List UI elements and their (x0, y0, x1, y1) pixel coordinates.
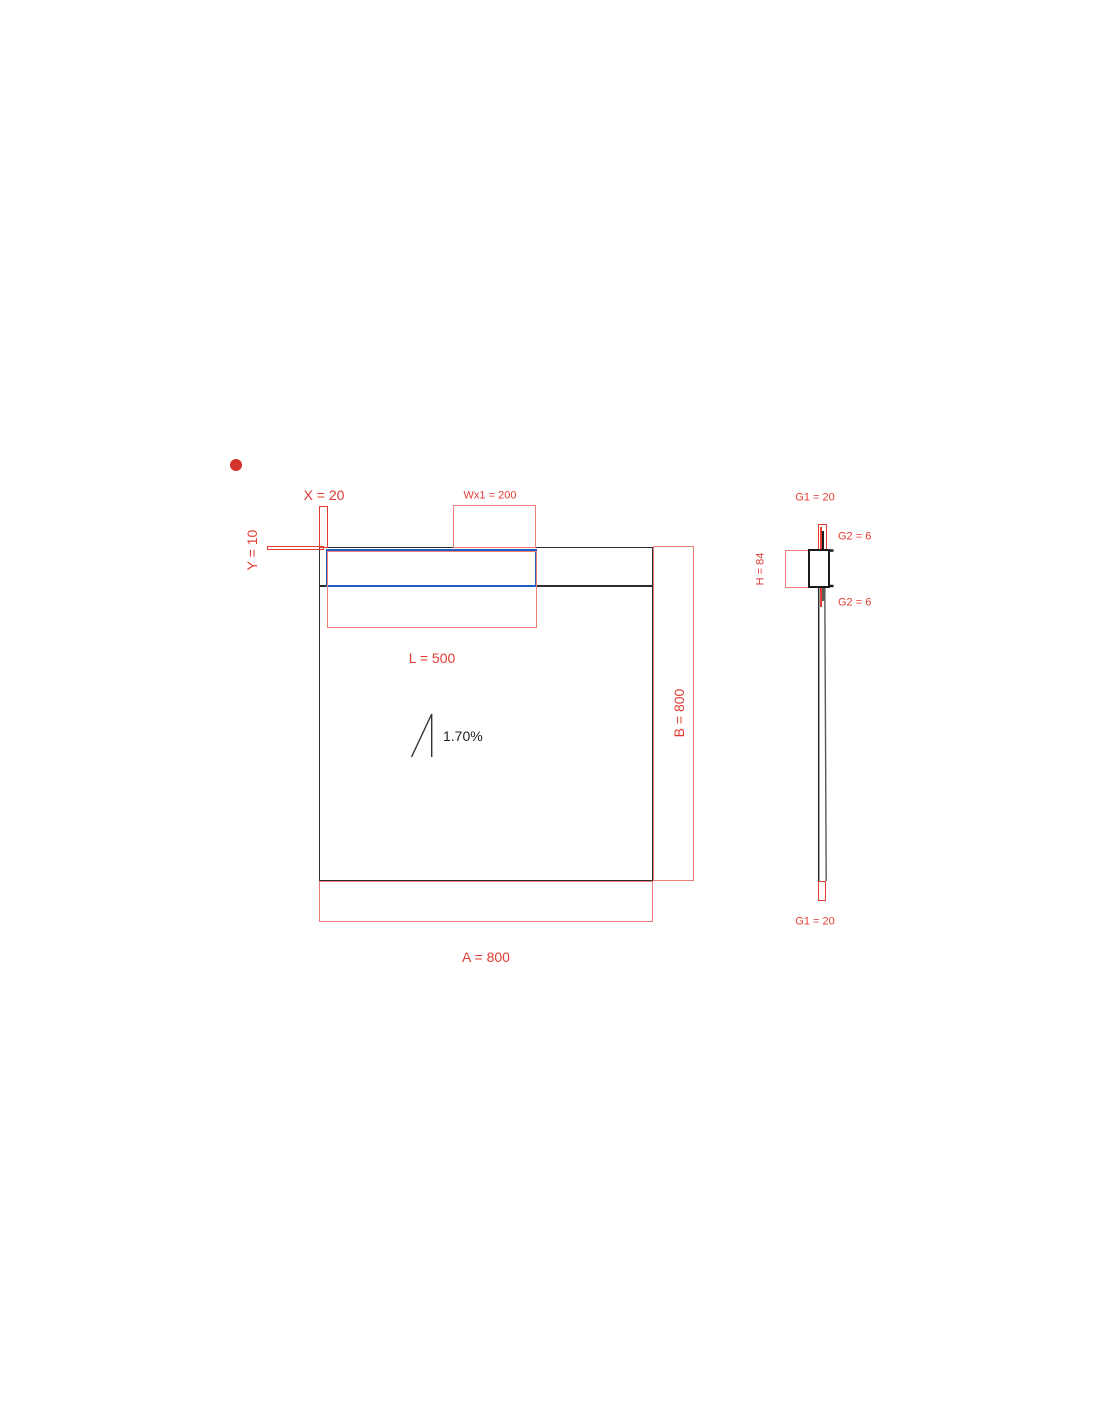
channel-flange (822, 531, 824, 549)
h-dim-bracket (785, 550, 808, 588)
g2-bottom-label: G2 = 6 (838, 598, 871, 609)
l-dim-label: L = 500 (409, 651, 456, 665)
slope-label: 1.70% (443, 729, 483, 743)
a-dim-label: A = 800 (462, 950, 510, 964)
a-dim-box (319, 881, 653, 922)
y-dim-box (267, 546, 324, 551)
l-dim-box (327, 551, 537, 628)
channel-outlet-stub (822, 588, 826, 601)
technical-drawing: X = 20 Y = 10 Wx1 = 200 L = 500 B = 800 … (0, 0, 1100, 1422)
marker-dot (230, 459, 242, 471)
b-dim-label: B = 800 (672, 689, 686, 738)
g1-bottom-label: G1 = 20 (795, 917, 834, 928)
wx1-dim-box (453, 505, 536, 548)
h-dim-label: H = 84 (756, 553, 767, 586)
channel-section-rect (808, 549, 830, 588)
tray-profile-lines (819, 588, 827, 881)
g2-top-label: G2 = 6 (838, 532, 871, 543)
channel-edge-ticks (829, 551, 834, 587)
g1-top-label: G1 = 20 (795, 493, 834, 504)
x-dim-box (319, 506, 328, 548)
g1-bottom-box (818, 881, 826, 901)
x-dim-label: X = 20 (304, 488, 345, 502)
wx1-dim-label: Wx1 = 200 (464, 491, 517, 502)
y-dim-label: Y = 10 (245, 530, 259, 571)
